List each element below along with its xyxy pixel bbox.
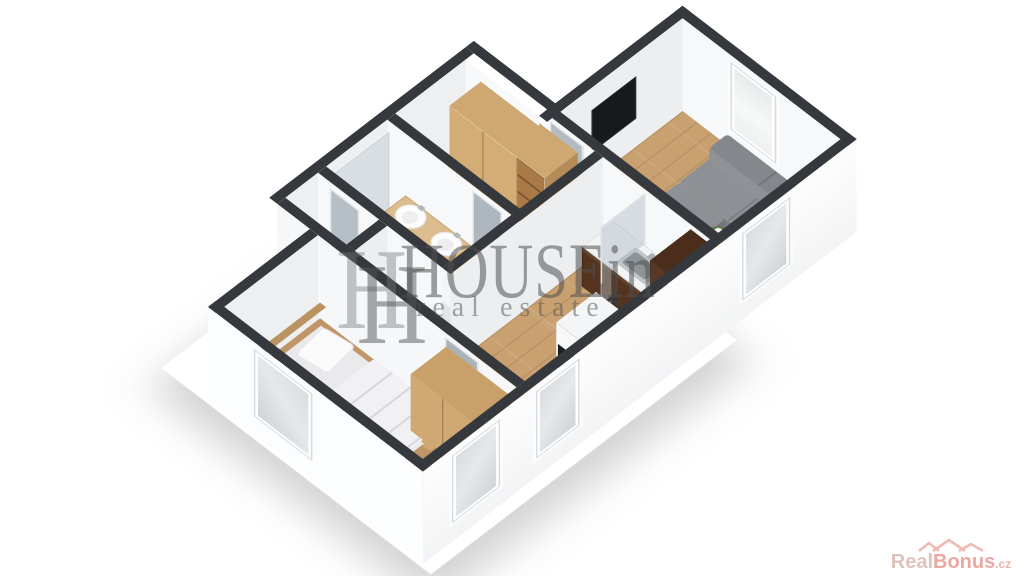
- attribution-real: Real: [891, 551, 933, 573]
- floor-plan-render: H H HOUSEin real estate RealBonus.cz: [0, 0, 1024, 576]
- attribution-tld: .cz: [995, 557, 1011, 571]
- attribution-bonus: Bonus: [933, 551, 995, 573]
- attribution-logo: RealBonus.cz: [886, 538, 1016, 573]
